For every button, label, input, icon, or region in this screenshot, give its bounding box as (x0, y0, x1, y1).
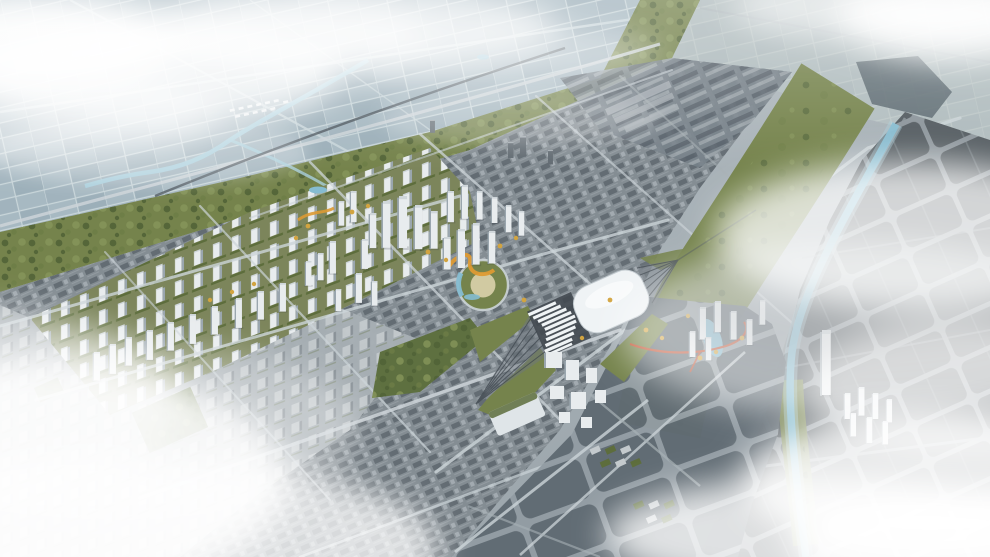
tower (412, 205, 424, 251)
tower (304, 261, 313, 287)
tower (337, 201, 345, 227)
tower (487, 231, 497, 265)
tower (429, 211, 439, 250)
tower (446, 191, 455, 223)
tower (256, 291, 265, 321)
tower (460, 185, 469, 220)
atmosphere-haze (0, 0, 990, 170)
tower (471, 223, 481, 266)
tower (278, 283, 287, 313)
tower (188, 314, 197, 345)
tower (517, 211, 525, 237)
lake (309, 187, 327, 194)
tower (360, 239, 369, 270)
tower (490, 197, 499, 224)
lake (464, 294, 480, 300)
tower (210, 306, 219, 336)
tower (456, 229, 467, 270)
tower (349, 191, 358, 223)
tower (234, 298, 243, 329)
tower (475, 191, 484, 221)
tower (442, 237, 452, 271)
tower (334, 289, 342, 312)
tower (316, 253, 325, 281)
aerial-city-render (0, 0, 990, 557)
tower (504, 205, 513, 233)
tower (368, 213, 378, 249)
tower (396, 196, 409, 250)
tower (354, 273, 363, 304)
tower (380, 201, 392, 250)
tower (328, 241, 337, 275)
tower (370, 281, 379, 307)
city-render-canvas (0, 0, 990, 557)
